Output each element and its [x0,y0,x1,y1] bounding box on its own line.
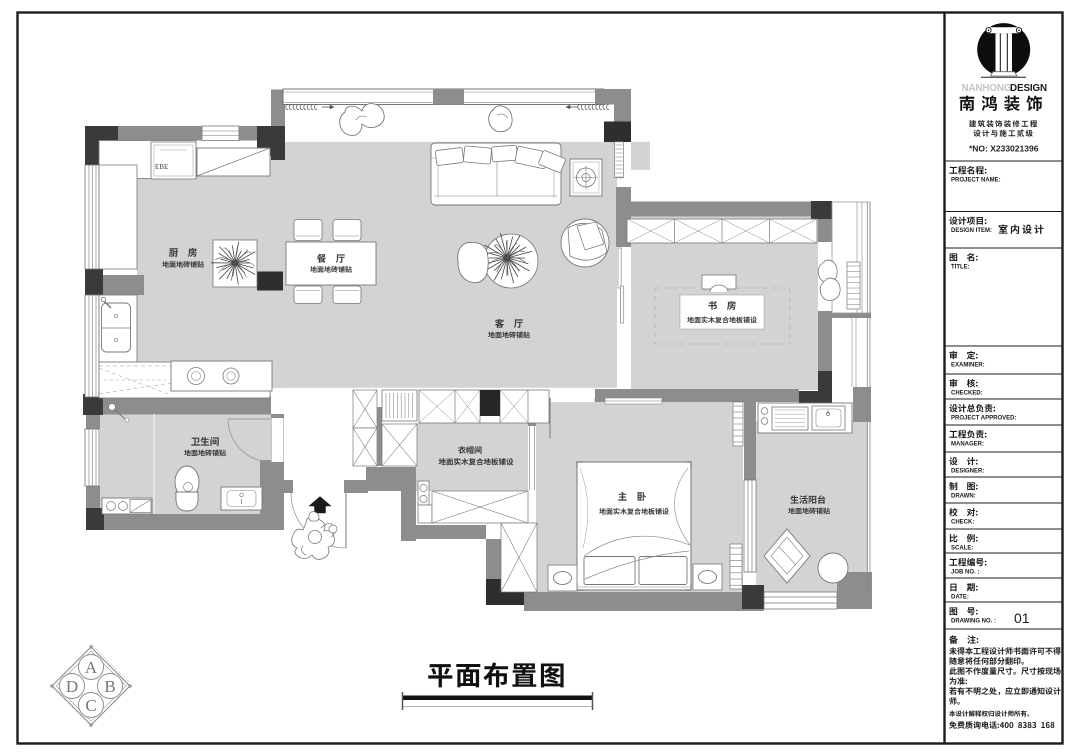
svg-text:DESIGN: DESIGN [1010,83,1047,94]
svg-text:MANAGER:: MANAGER: [951,442,984,448]
svg-text:EXAMINER:: EXAMINER: [951,363,985,369]
svg-text:C: C [85,696,96,715]
svg-text:DRAWING NO. :: DRAWING NO. : [951,619,996,625]
svg-text:PROJECT APPROVED:: PROJECT APPROVED: [951,416,1016,422]
svg-text:EBE: EBE [155,163,168,171]
svg-text:A: A [85,658,98,677]
svg-text:SCALE:: SCALE: [951,546,973,552]
svg-text:DESIGNER:: DESIGNER: [951,469,984,475]
svg-text:D: D [66,677,78,696]
svg-text:TITLE:: TITLE: [951,265,970,271]
svg-text:DRAWN:: DRAWN: [951,494,976,500]
svg-text:CHECKED:: CHECKED: [951,391,983,397]
svg-text:CHECK:: CHECK: [951,520,974,526]
svg-text:DESIGN ITEM:: DESIGN ITEM: [951,228,992,234]
svg-text:JOB NO. :: JOB NO. : [951,570,979,576]
svg-text:PROJECT NAME:: PROJECT NAME: [951,178,1001,184]
svg-text:B: B [104,677,115,696]
svg-text:*NO: X233021396: *NO: X233021396 [969,144,1039,154]
svg-text:DATE:: DATE: [951,595,969,601]
svg-text:01: 01 [1014,610,1030,626]
svg-text:NANHONG: NANHONG [962,83,1012,94]
